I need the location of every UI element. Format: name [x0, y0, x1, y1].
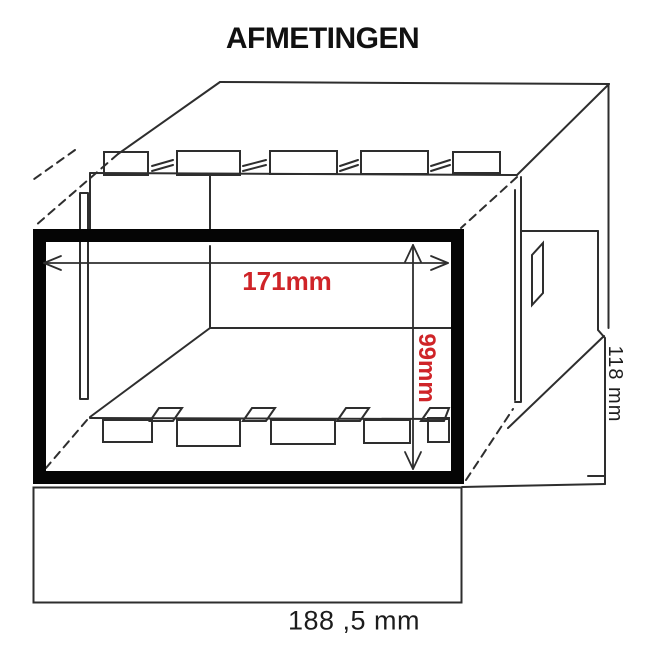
enclosure-drawing [0, 0, 645, 645]
dimension-diagram-page: AFMETINGEN [0, 0, 645, 645]
inner-height-label: 99mm [414, 333, 438, 402]
top-mounting-tabs [104, 151, 500, 175]
depth-label: 118 mm [605, 346, 625, 423]
case-outline [80, 82, 609, 487]
bottom-flange [34, 488, 462, 603]
outer-width-label: 188 ,5 mm [288, 608, 420, 635]
tab-connector [243, 160, 266, 171]
side-cutout [532, 243, 543, 305]
tab-connector [431, 160, 450, 171]
tab-connector [340, 160, 358, 171]
inner-width-label: 171mm [242, 268, 332, 294]
bottom-mounting-tabs [103, 408, 449, 446]
tab-connector [152, 160, 173, 171]
